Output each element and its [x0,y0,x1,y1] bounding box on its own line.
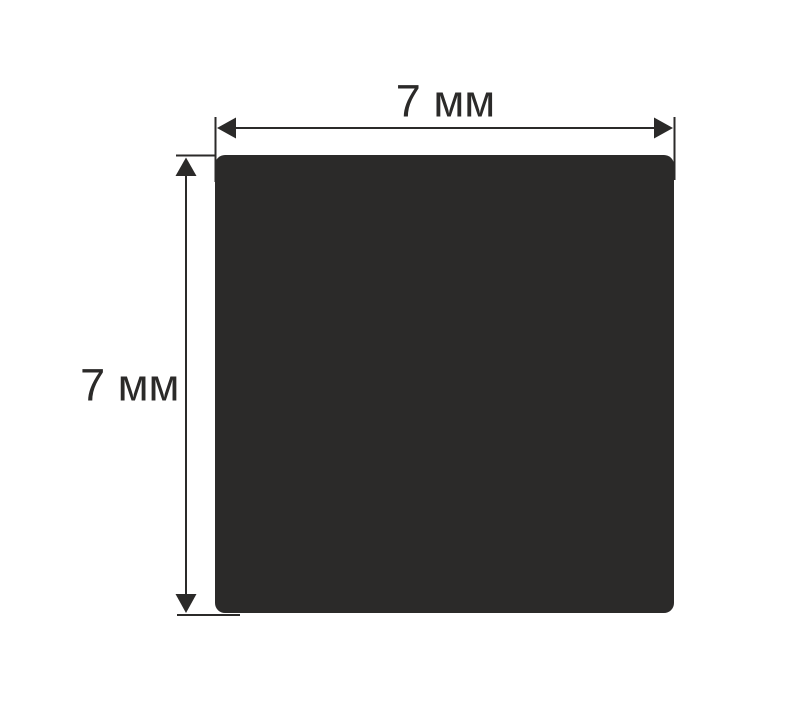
svg-text:7 мм: 7 мм [80,360,179,411]
svg-text:7 мм: 7 мм [396,76,495,127]
